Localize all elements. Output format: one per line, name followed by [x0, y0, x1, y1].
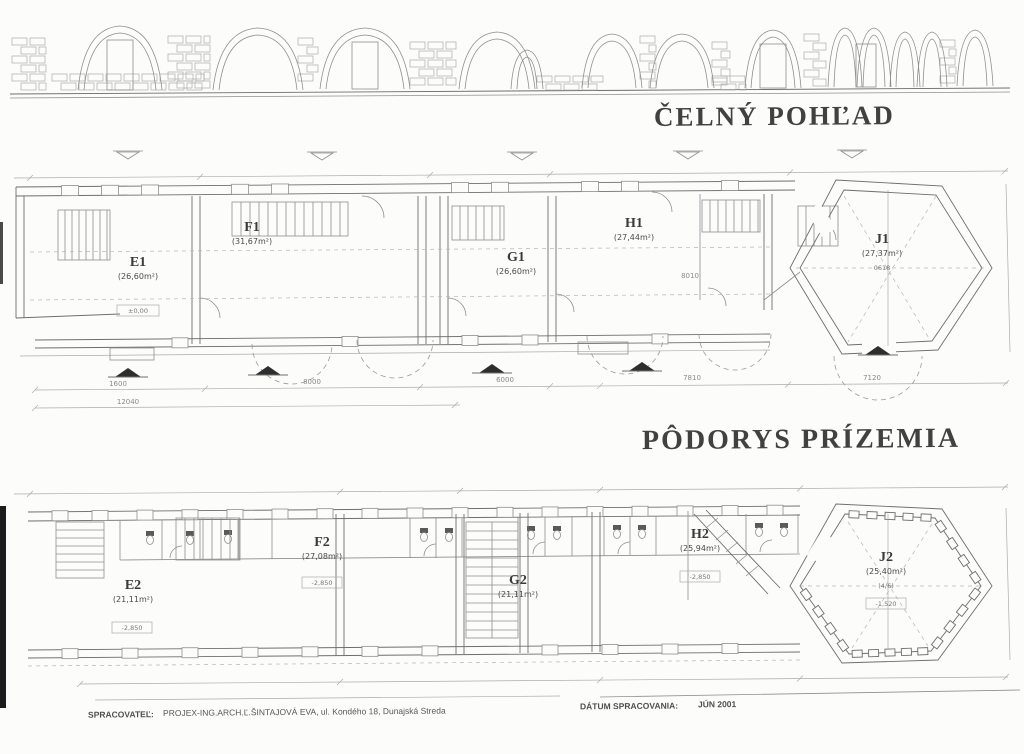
stairs [56, 510, 780, 638]
dimension-line [14, 484, 1008, 497]
room-area-f1: (31,67m²) [232, 237, 272, 246]
room-label-j2: J2 [879, 550, 893, 565]
level-mark-h2: -2,850 [690, 573, 711, 581]
dim-7120: 7120 [863, 374, 881, 382]
room-area-g1: (26,60m²) [496, 267, 536, 276]
room-label-e1: E1 [130, 255, 146, 270]
date-value: JÚN 2001 [698, 699, 736, 709]
date-label: DÁTUM SPRACOVANIA: [580, 701, 678, 712]
room-area-h2: (25,94m²) [680, 544, 720, 553]
dimension-line-total [32, 402, 460, 411]
room-area-h1: (27,44m²) [614, 233, 654, 242]
level-mark-f2: -2,850 [312, 579, 333, 587]
dim-8000: 8000 [303, 378, 321, 386]
scan-artifact-bar [0, 506, 6, 708]
room-label-f1: F1 [244, 220, 260, 235]
dim-1600: 1600 [109, 380, 127, 388]
room-area-j2: (25,40m²) [866, 567, 906, 576]
room-label-f2: F2 [314, 535, 330, 550]
lower-floor-plan: E2 (21,11m²) -2,850 F2 (27,08m²) -2,850 … [0, 222, 1010, 708]
wall-left [16, 187, 120, 318]
room-label-e2: E2 [125, 578, 141, 593]
elevation-baseline [10, 88, 1010, 98]
dimension-line [14, 168, 1008, 181]
wall-bottom [20, 334, 770, 360]
wall-top [28, 505, 800, 521]
room-area-e2: (21,11m²) [113, 595, 153, 604]
partition-walls [192, 194, 772, 344]
arch-group [78, 26, 993, 90]
wall-top [16, 181, 795, 196]
dim-12040: 12040 [117, 398, 139, 406]
elevation-title: ČELNÝ POHĽAD [654, 100, 895, 133]
note-j2: (4/6) [878, 582, 894, 590]
dim-8010: 8010 [681, 272, 699, 280]
room-area-e1: (26,60m²) [118, 272, 158, 281]
room-label-h1: H1 [625, 216, 643, 231]
level-mark-e1: ±0,00 [128, 307, 148, 315]
upper-floor-plan: E1 (26,60m²) ±0,00 F1 (31,67m²) G1 (26,6… [14, 150, 1010, 411]
hexagon-tower-lower [790, 504, 1010, 663]
author-label: SPRACOVATEĽ: [88, 709, 154, 720]
room-area-g2: (21,11m²) [498, 590, 538, 599]
level-mark-j2: -1,520 [876, 600, 897, 608]
masonry [12, 34, 956, 90]
elevation-drawing [10, 26, 1010, 98]
dim-6000: 6000 [496, 376, 514, 384]
section-markers [113, 150, 867, 160]
author-value: PROJEX-ING.ARCH.Ľ.ŠINTAJOVÁ EVA, ul. Kon… [163, 706, 446, 718]
room-area-j1: (27,37m²) [862, 249, 902, 258]
wall-bottom [28, 644, 800, 666]
ground-plan-title: PÔDORYS PRÍZEMIA [642, 423, 960, 457]
room-label-g1: G1 [507, 250, 525, 265]
entrance-markers [108, 346, 898, 377]
level-mark-e2: -2,850 [122, 624, 143, 632]
note-j1: 0618 [874, 264, 891, 272]
dashed-arcs [30, 247, 922, 400]
room-label-j1: J1 [875, 232, 889, 247]
dimension-line [77, 674, 1009, 687]
scan-artifact-mark [0, 222, 3, 284]
room-area-f2: (27,08m²) [302, 552, 342, 561]
scanned-drawing-page: E1 (26,60m²) ±0,00 F1 (31,67m²) G1 (26,6… [0, 0, 1024, 754]
dim-7810: 7810 [683, 374, 701, 382]
room-label-h2: H2 [691, 527, 709, 542]
room-label-g2: G2 [509, 573, 527, 588]
